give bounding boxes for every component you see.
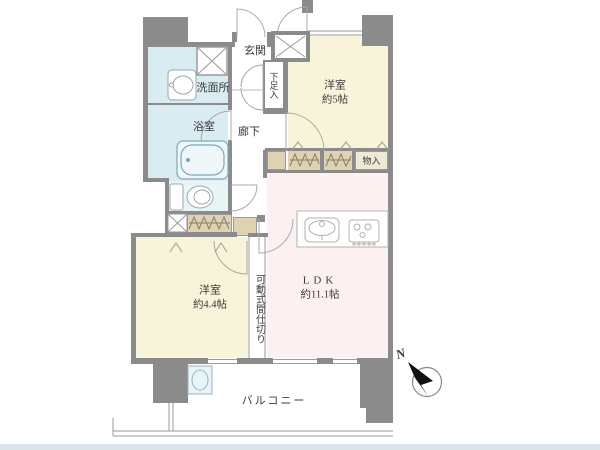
label-ldk-size: 約11.1帖 [301, 288, 340, 301]
label-ldk-name: LDK [301, 275, 340, 289]
label-movable-partition: 可動式間仕切り [251, 266, 267, 352]
label-western-room-5: 洋室 約5帖 [322, 80, 348, 107]
label-western-room-44-size: 約4.4帖 [193, 298, 227, 311]
meter-box-icon [273, 33, 308, 60]
label-western-room-44: 洋室 約4.4帖 [193, 285, 227, 312]
window-ldk-1 [273, 360, 317, 364]
label-bathroom: 浴室 [193, 121, 215, 135]
hanger-icon [189, 217, 230, 229]
label-western-room-5-size: 約5帖 [322, 93, 348, 106]
label-balcony: バルコニー [242, 395, 307, 409]
toilet-door-arc [231, 185, 257, 211]
window-western44 [208, 360, 237, 364]
hanger-icon [326, 154, 351, 166]
bathtub-icon [177, 141, 228, 179]
fold-mark [215, 243, 227, 252]
fold-mark [291, 142, 305, 151]
label-ldk: LDK 約11.1帖 [301, 275, 340, 302]
window-ldk-2 [333, 360, 357, 364]
ldk-door-arc [259, 219, 293, 253]
bottom-strip [0, 444, 600, 450]
label-storage: 物入 [355, 151, 388, 170]
hanger-icon [290, 154, 319, 166]
shoe-door-arc-lower [241, 88, 263, 110]
balcony-washer-pan-icon [188, 366, 212, 394]
toilet-icon [170, 184, 213, 210]
label-washroom: 洗面所 [197, 82, 230, 96]
label-western-room-5-name: 洋室 [322, 80, 348, 94]
floor-plan: 下足入 [0, 0, 600, 450]
entrance-door-arc [237, 9, 265, 37]
label-hallway: 廊下 [238, 126, 260, 140]
washer-pan-icon [197, 47, 227, 75]
label-entrance: 玄関 [244, 45, 266, 59]
window-top [308, 31, 362, 35]
sink-icon [168, 70, 196, 100]
kitchen-counter [297, 211, 388, 247]
fold-mark [375, 142, 389, 151]
shoe-door-arc-upper [241, 65, 263, 87]
fold-mark [170, 243, 182, 252]
label-western-room-44-name: 洋室 [193, 285, 227, 299]
pipe-space-icon [168, 214, 187, 232]
western5-door-arc [286, 113, 324, 151]
plan-linework [0, 0, 600, 450]
fold-mark [339, 142, 353, 151]
compass-icon [408, 362, 442, 397]
